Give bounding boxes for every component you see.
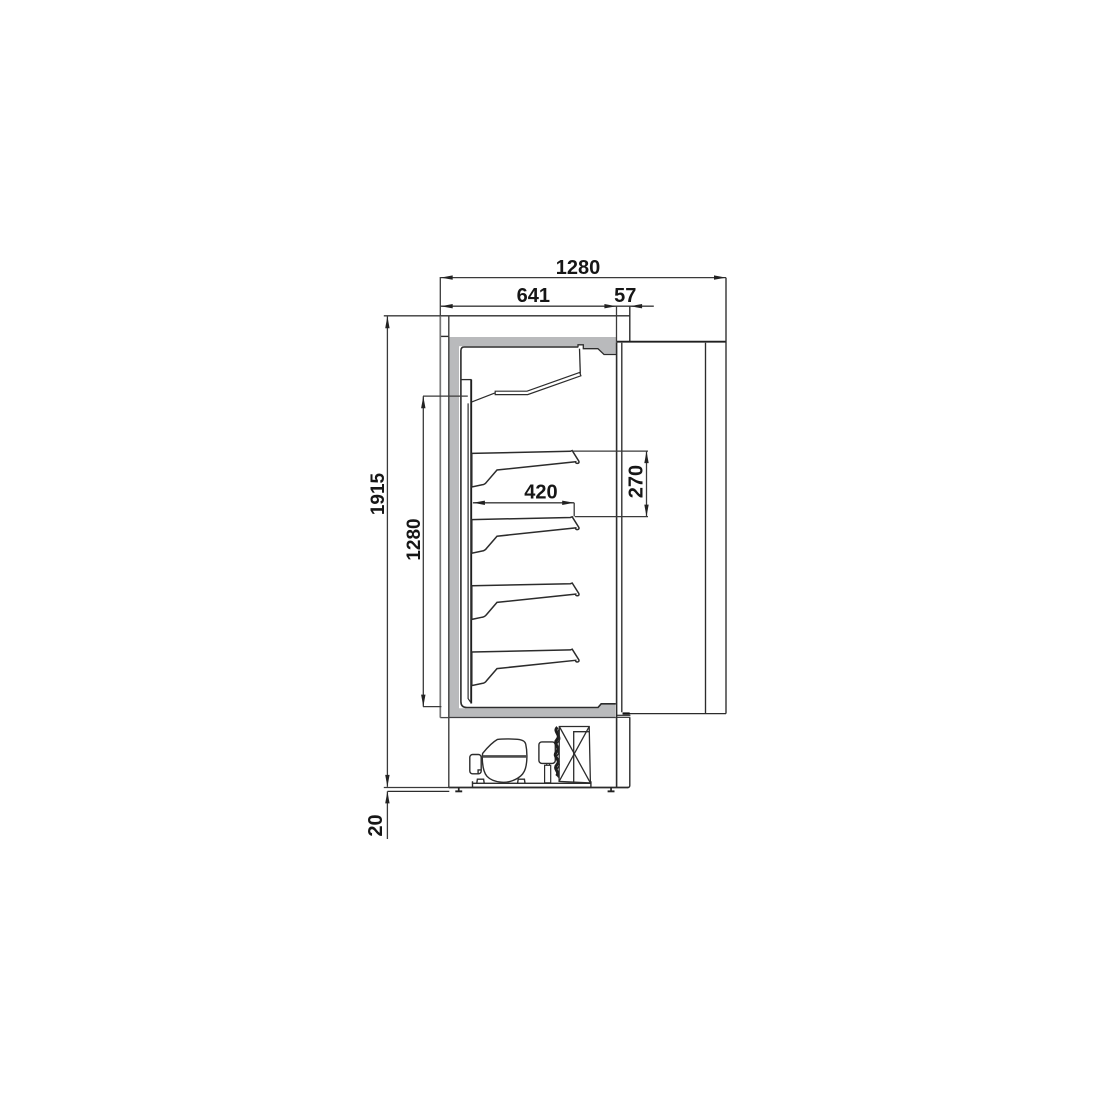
svg-text:57: 57: [614, 285, 636, 307]
svg-text:1280: 1280: [556, 257, 601, 279]
svg-text:1915: 1915: [368, 472, 389, 515]
svg-text:1280: 1280: [404, 518, 425, 560]
svg-text:420: 420: [524, 481, 557, 503]
svg-text:270: 270: [626, 465, 648, 498]
svg-text:641: 641: [517, 285, 550, 307]
svg-text:20: 20: [365, 814, 387, 836]
